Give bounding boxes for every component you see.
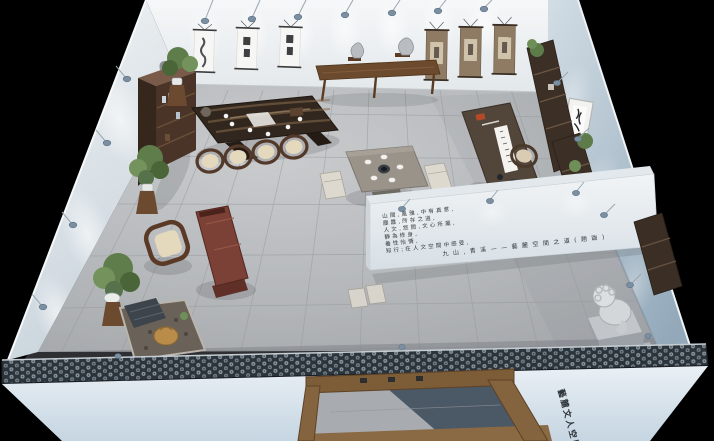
shelf-plant (527, 39, 537, 49)
shelf-books (162, 96, 166, 103)
shelf-books (165, 134, 170, 141)
white-hanging-scrolls (191, 20, 303, 73)
shelf-books (176, 112, 180, 119)
render-canvas: 山間,風雅,中有真意, 塵囂,所存之道, 人文,悠閒,文心所屬, 靜為修身, 養… (0, 0, 714, 441)
calligraphy-character (244, 49, 250, 57)
calligraphy-character (286, 35, 293, 43)
golden-buddha-planter (154, 327, 178, 345)
shelf-vase (548, 84, 554, 90)
inkstone (497, 174, 503, 180)
hanging-scroll (277, 20, 303, 68)
lintel-bracket (360, 378, 367, 383)
tea-tray (290, 107, 304, 116)
hanging-scroll (492, 17, 518, 74)
stone-ornament (201, 107, 211, 117)
calligraphy-character (287, 47, 293, 55)
hanging-scroll (234, 21, 260, 70)
bonsai-pot (172, 78, 182, 85)
calligraphy-character (243, 37, 250, 45)
shelf-plant (569, 160, 581, 172)
lintel-bracket (416, 376, 423, 381)
hanging-scroll (458, 19, 484, 77)
lintel-bracket (388, 377, 395, 382)
plant-stand (167, 85, 187, 106)
garden-plant (180, 312, 188, 320)
bonsai-pot (142, 184, 153, 191)
entrance (298, 369, 552, 441)
interior-render: 山間,風雅,中有真意, 塵囂,所存之道, 人文,悠閒,文心所屬, 靜為修身, 養… (0, 0, 714, 441)
bonsai-pot (104, 293, 120, 303)
